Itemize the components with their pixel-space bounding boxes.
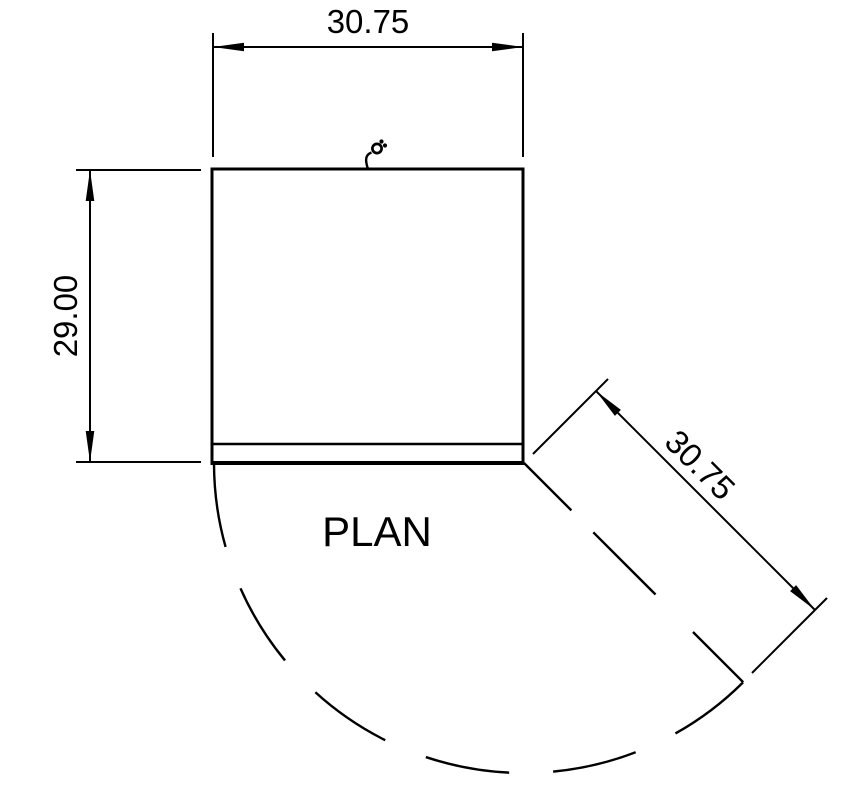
depth-dimension-value: 29.00 [47, 275, 84, 358]
swing-extension-line-far [752, 598, 827, 673]
swing-dimension-line [596, 391, 815, 610]
swing-arrow-near-icon [596, 391, 621, 416]
swing-dimension: 30.75 [533, 379, 827, 673]
swing-arrow-far-icon [790, 585, 815, 610]
width-arrow-left-icon [213, 43, 244, 52]
width-dimension: 30.75 [213, 3, 523, 157]
technical-drawing-canvas: 30.75 29.00 30.75 PLAN [0, 0, 865, 800]
width-dimension-value: 30.75 [327, 3, 410, 40]
plug-head-circle [372, 144, 381, 153]
depth-arrow-bottom-icon [86, 431, 95, 462]
plug-prong-dot-1 [379, 139, 383, 143]
swing-arc-dashed [214, 463, 743, 773]
swing-extension-line-near [533, 379, 608, 454]
plan-drawing-svg: 30.75 29.00 30.75 PLAN [0, 0, 865, 800]
cord-plug-symbol [366, 139, 387, 169]
plan-label: PLAN [322, 508, 432, 555]
plan-view-body [211, 169, 525, 463]
swing-geometry [214, 463, 743, 773]
depth-dimension: 29.00 [47, 170, 201, 462]
plug-prong-dot-2 [383, 143, 387, 147]
depth-arrow-top-icon [86, 170, 95, 201]
width-arrow-right-icon [492, 43, 523, 52]
cord-stem [366, 153, 371, 170]
plan-outline-rectangle [212, 169, 523, 463]
